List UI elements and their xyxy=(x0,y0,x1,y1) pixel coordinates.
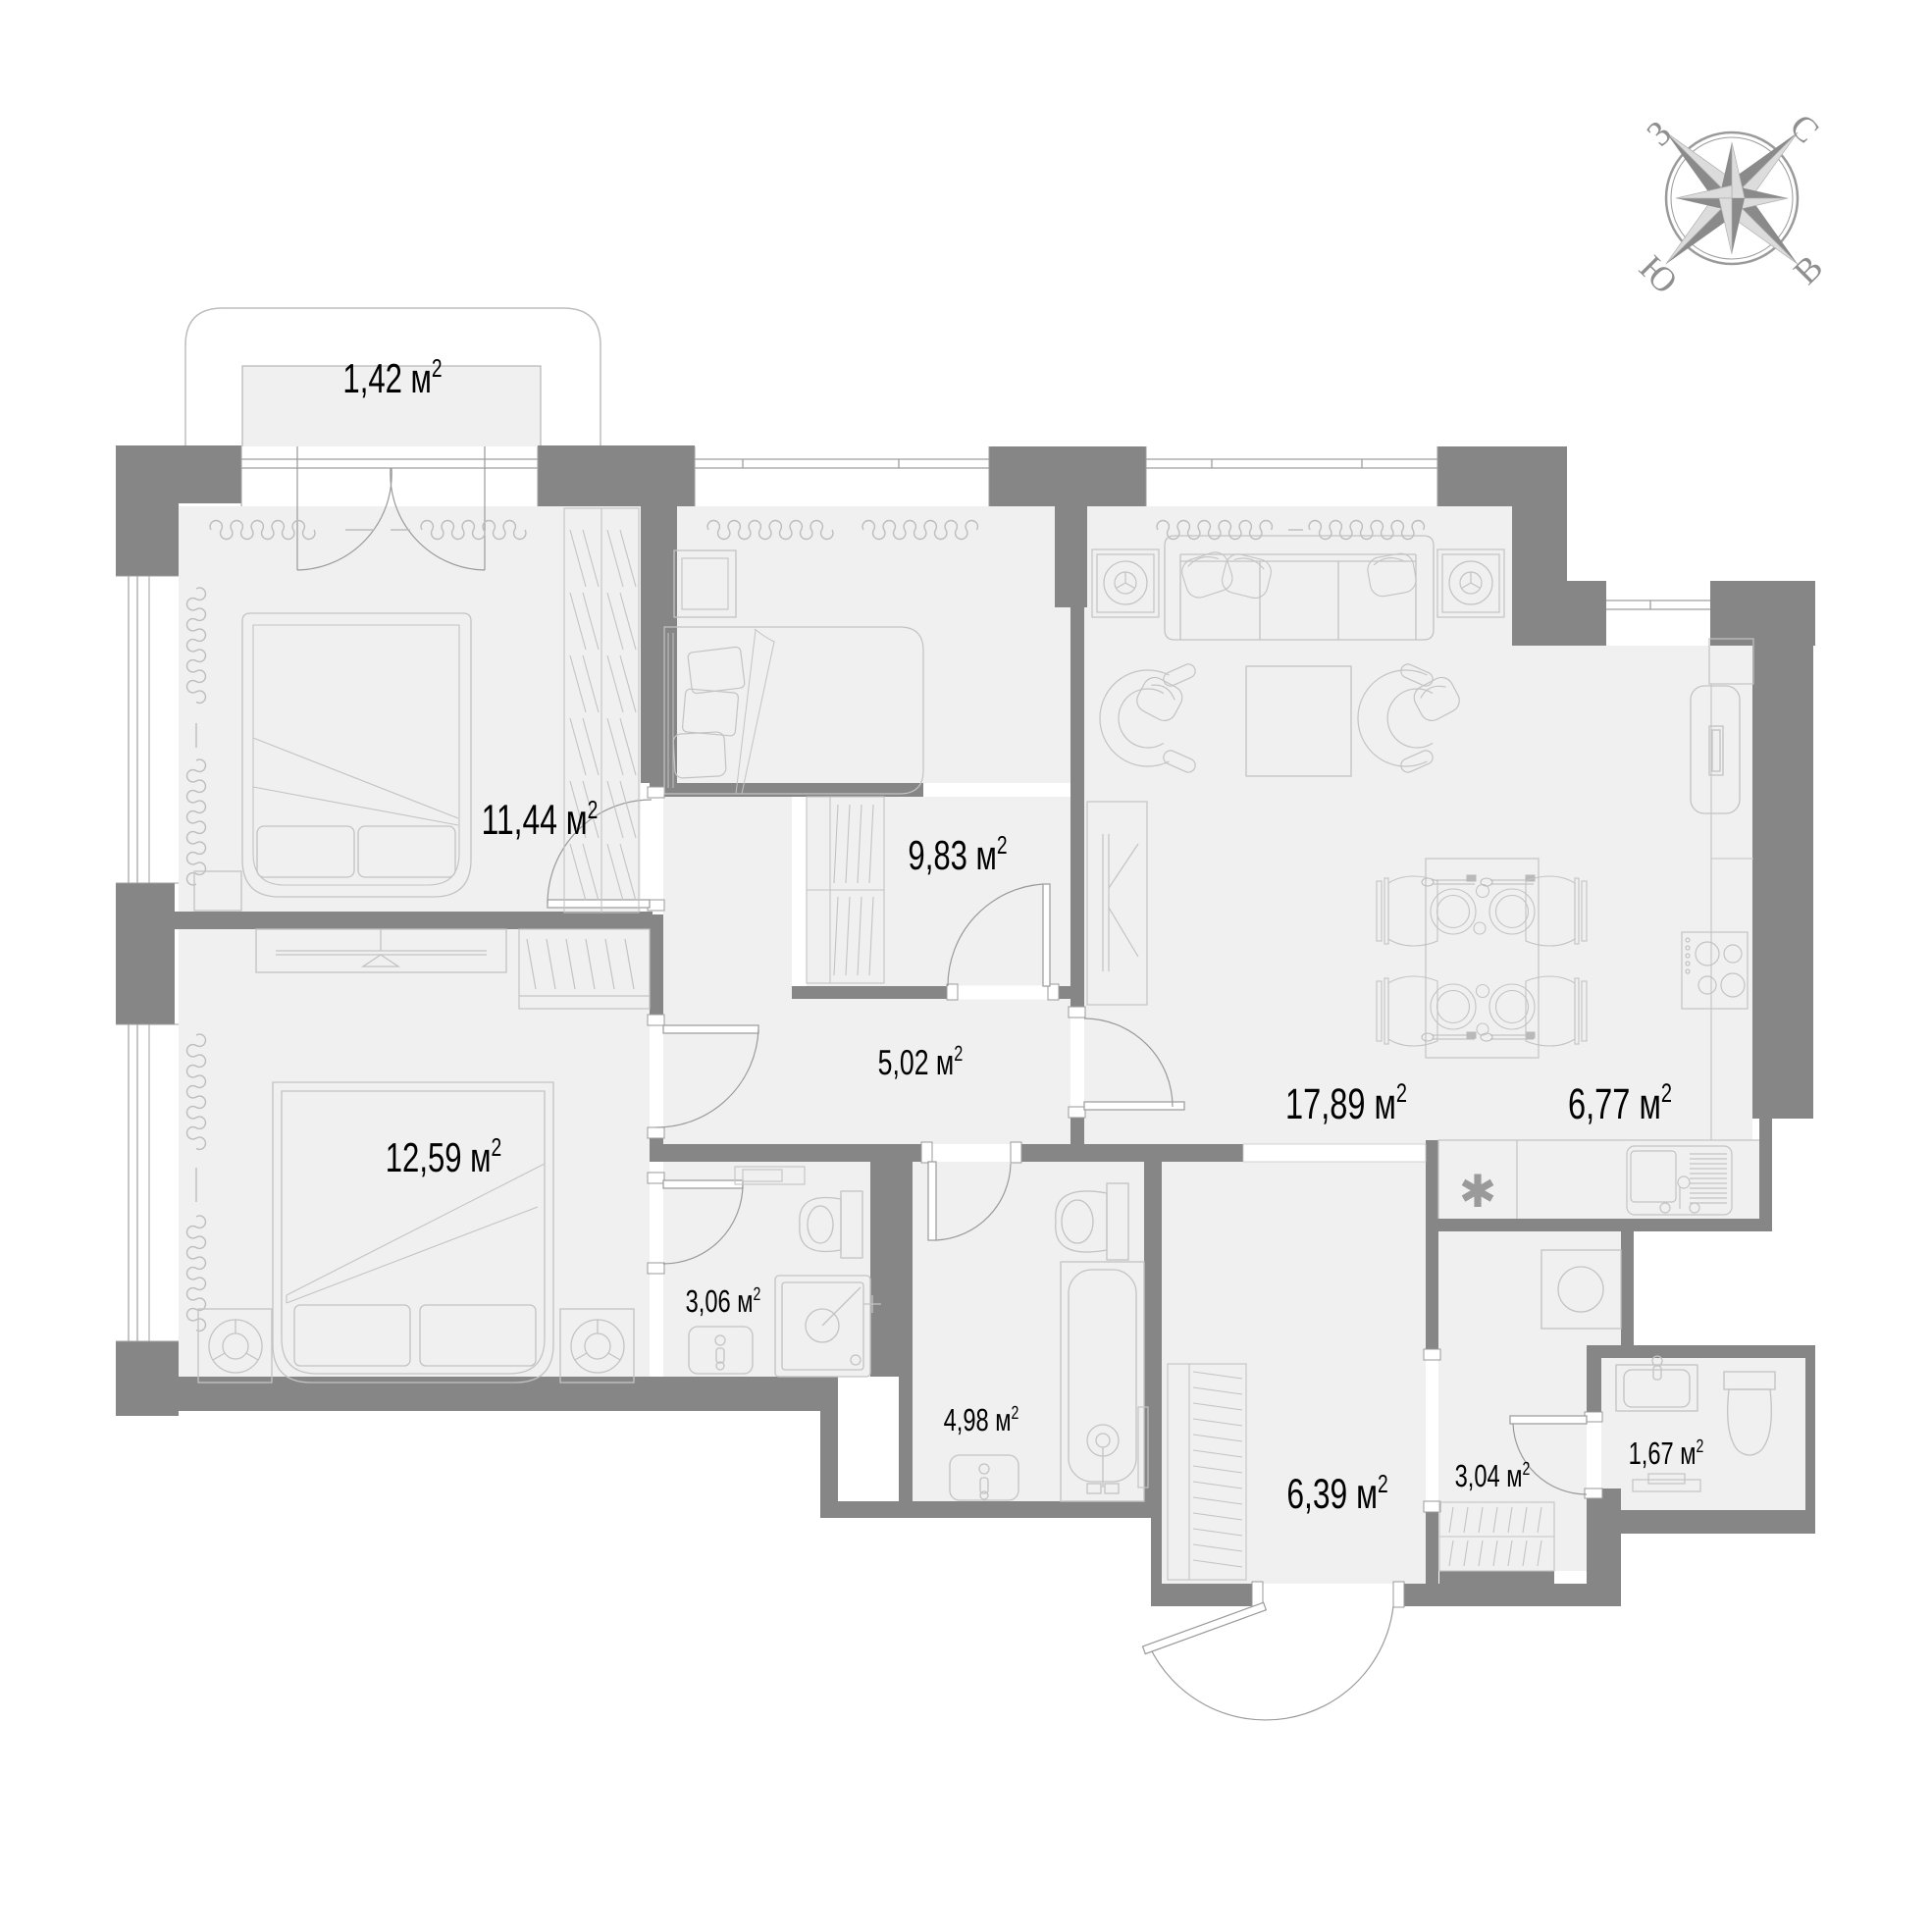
svg-text:12,59 м2: 12,59 м2 xyxy=(386,1132,501,1180)
svg-text:1,42 м2: 1,42 м2 xyxy=(342,353,442,401)
svg-text:3,06 м2: 3,06 м2 xyxy=(686,1283,761,1319)
svg-text:17,89 м2: 17,89 м2 xyxy=(1285,1078,1407,1128)
svg-text:5,02 м2: 5,02 м2 xyxy=(878,1041,964,1082)
svg-text:6,39 м2: 6,39 м2 xyxy=(1286,1469,1387,1518)
svg-text:✱: ✱ xyxy=(1459,1166,1497,1217)
svg-text:6,77 м2: 6,77 м2 xyxy=(1568,1078,1672,1128)
svg-text:4,98 м2: 4,98 м2 xyxy=(944,1402,1019,1437)
svg-text:3,04 м2: 3,04 м2 xyxy=(1455,1458,1531,1493)
svg-text:1,67 м2: 1,67 м2 xyxy=(1629,1436,1704,1471)
svg-text:11,44 м2: 11,44 м2 xyxy=(482,795,599,844)
svg-text:9,83 м2: 9,83 м2 xyxy=(908,830,1007,878)
